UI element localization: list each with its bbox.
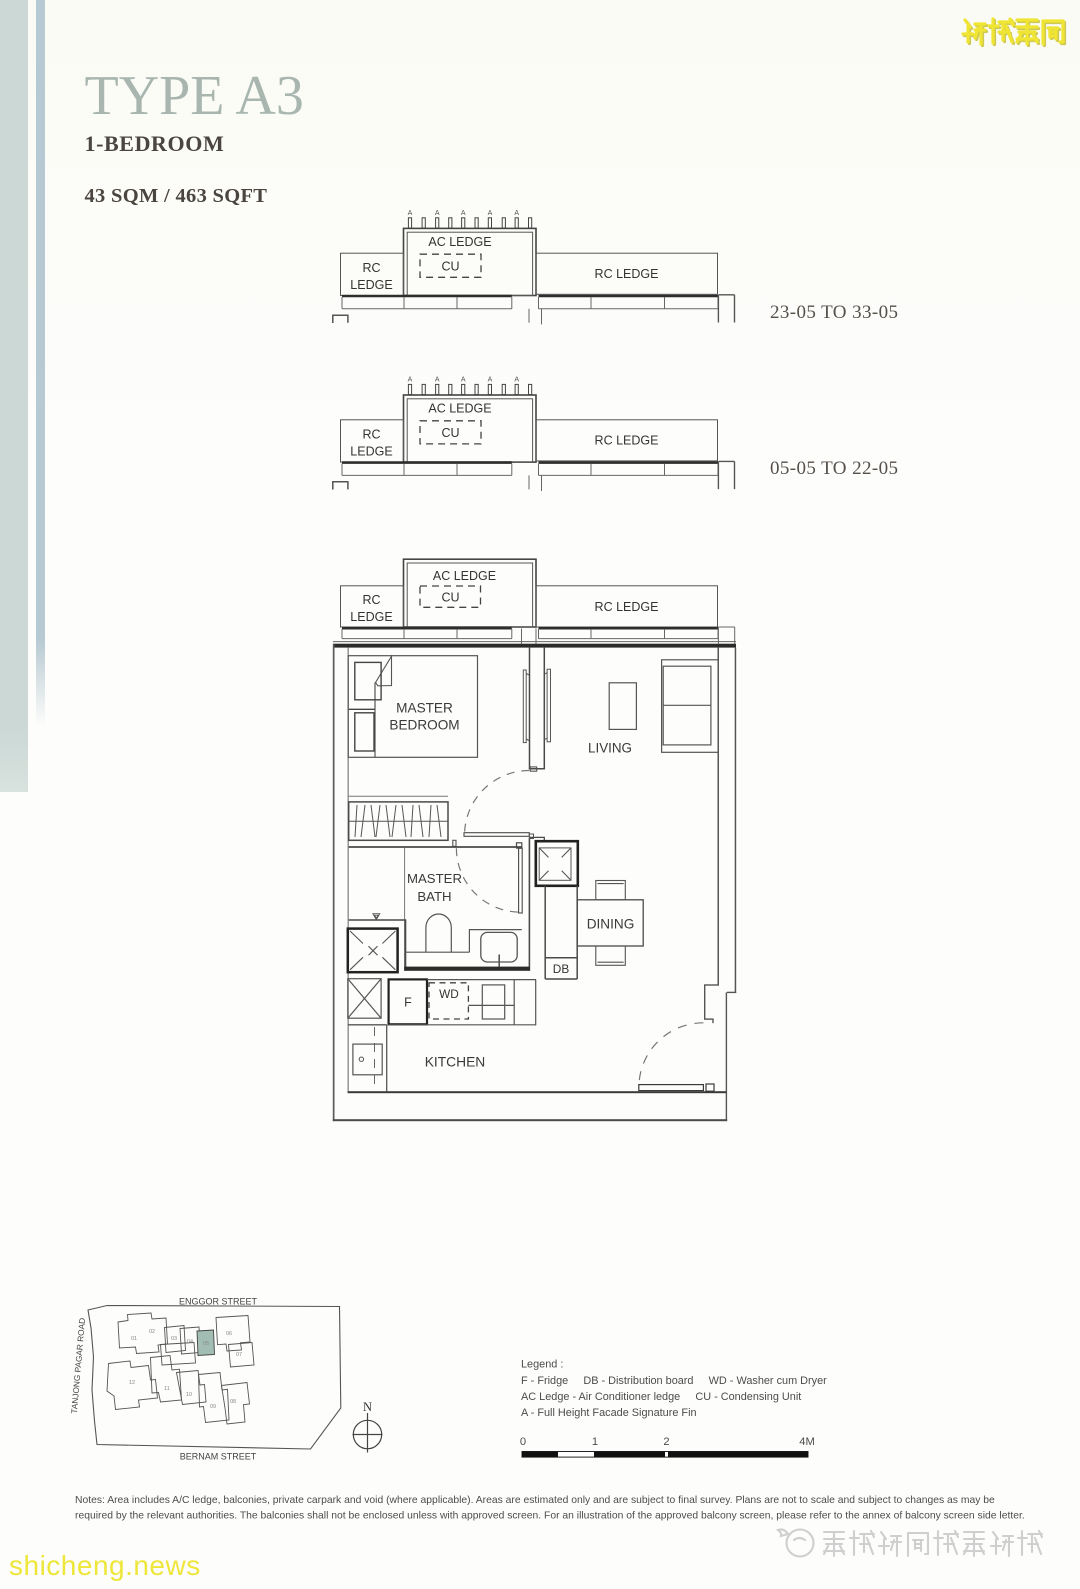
svg-text:07: 07 [236,1352,242,1358]
svg-text:2: 2 [663,1436,669,1448]
svg-text:09: 09 [210,1404,216,1410]
svg-text:KITCHEN: KITCHEN [425,1054,486,1069]
svg-text:BERNAM STREET: BERNAM STREET [180,1452,257,1462]
svg-text:03: 03 [171,1336,177,1342]
svg-text:A - Full Height Facade Signatu: A - Full Height Facade Signature Fin [521,1407,697,1419]
svg-text:TANJONG PAGAR ROAD: TANJONG PAGAR ROAD [69,1317,87,1414]
svg-text:RC: RC [362,593,380,607]
svg-text:MASTER: MASTER [407,871,462,886]
svg-text:12: 12 [129,1380,135,1386]
svg-text:0: 0 [520,1436,526,1448]
svg-text:F: F [404,996,412,1010]
svg-text:08: 08 [230,1399,236,1405]
svg-text:AC Ledge - Air Conditioner led: AC Ledge - Air Conditioner ledge CU - Co… [521,1391,801,1403]
svg-text:Notes: Area includes A/C ledge: Notes: Area includes A/C ledge, balconie… [75,1495,995,1506]
svg-text:06: 06 [226,1331,232,1337]
svg-text:BATH: BATH [417,889,451,904]
svg-text:WD: WD [439,987,459,1001]
svg-text:01: 01 [131,1336,137,1342]
svg-text:1: 1 [592,1436,598,1448]
svg-text:MASTER: MASTER [396,701,453,716]
svg-text:02: 02 [149,1329,155,1335]
svg-text:RC LEDGE: RC LEDGE [595,600,659,614]
svg-text:required by the relevant autho: required by the relevant authorities. Th… [75,1511,1025,1522]
svg-text:04: 04 [187,1339,193,1345]
svg-text:F - Fridge DB - Distributi: F - Fridge DB - Distribution board WD - … [521,1375,827,1387]
svg-text:10: 10 [186,1392,192,1398]
svg-text:05: 05 [203,1341,209,1347]
svg-text:DB: DB [553,962,570,976]
svg-text:AC LEDGE: AC LEDGE [433,569,496,583]
svg-text:CU: CU [441,591,459,605]
svg-text:LIVING: LIVING [588,740,632,755]
svg-text:4M: 4M [799,1436,815,1448]
svg-text:11: 11 [164,1386,170,1392]
svg-text:LEDGE: LEDGE [350,610,392,624]
svg-text:BEDROOM: BEDROOM [389,718,459,733]
svg-text:N: N [363,1400,372,1414]
svg-text:DINING: DINING [587,917,635,932]
svg-text:ENGGOR STREET: ENGGOR STREET [179,1297,258,1307]
svg-text:Legend :: Legend : [521,1359,563,1371]
